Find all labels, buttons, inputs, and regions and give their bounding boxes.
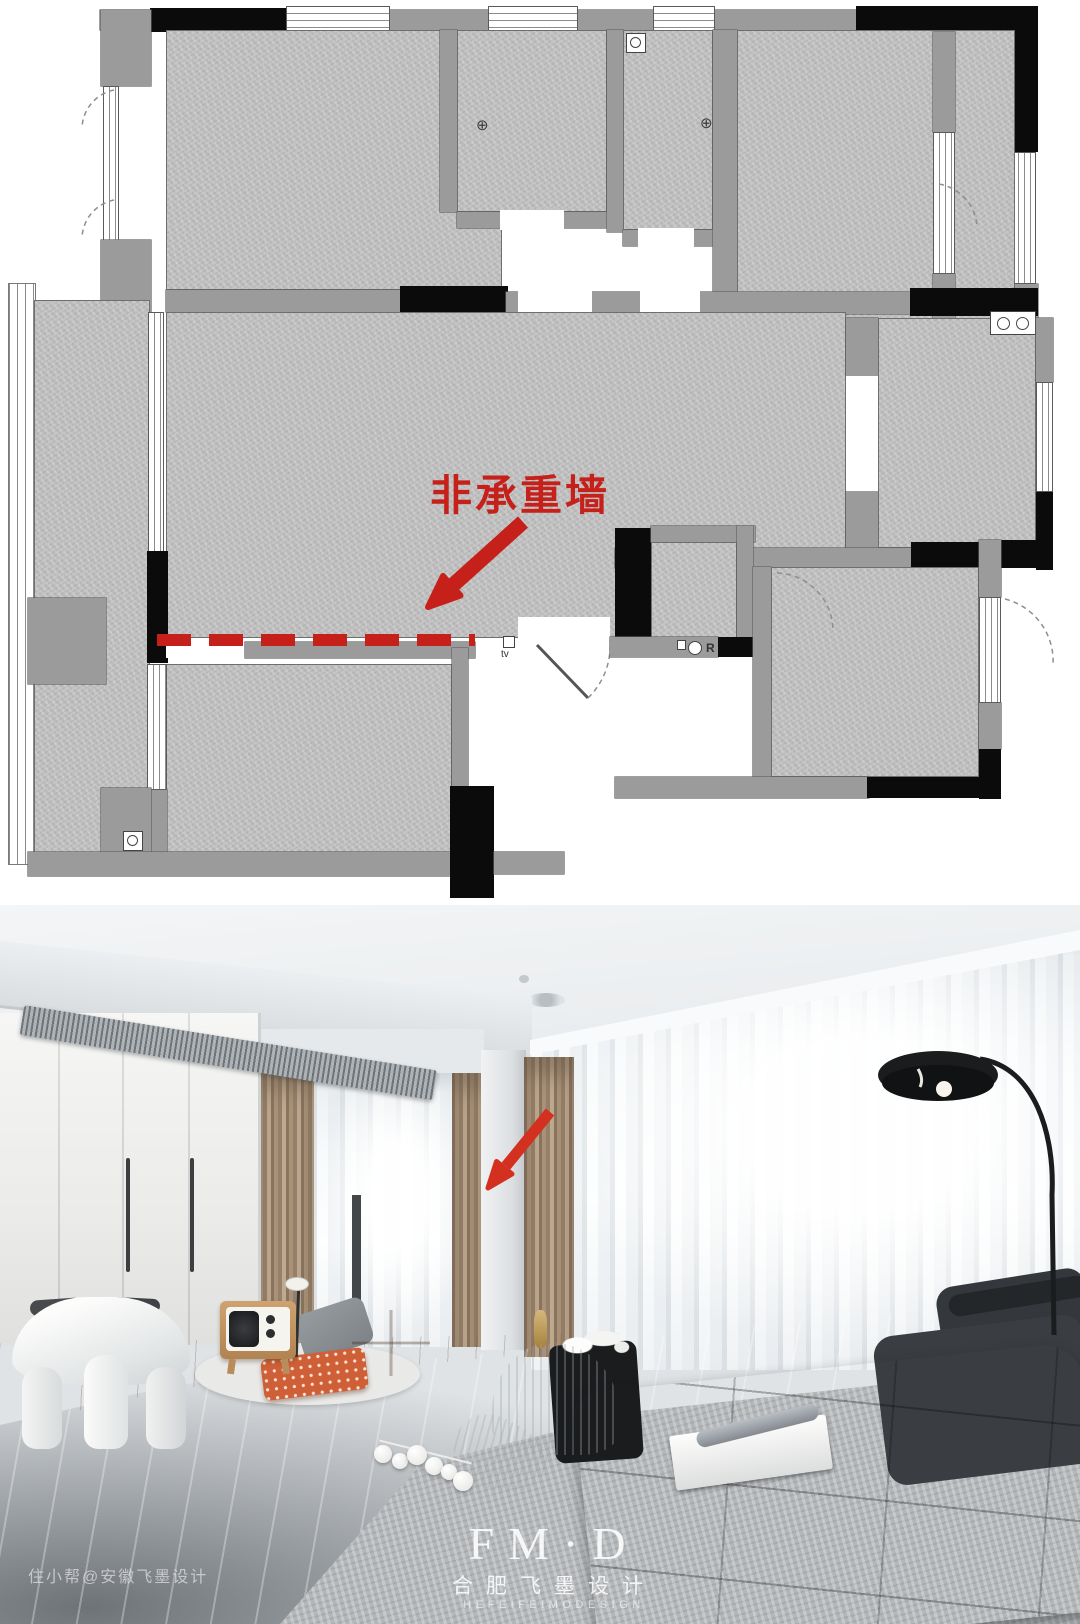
wall-inner-right bbox=[933, 32, 955, 132]
wall-bedroom-bl-right bbox=[452, 648, 468, 788]
watermark-logo: FM·D bbox=[404, 1517, 704, 1570]
window-top-1 bbox=[286, 6, 390, 32]
wall-bedroom-br-right-b bbox=[979, 703, 1001, 749]
pompom bbox=[392, 1453, 408, 1469]
window-swing-icon bbox=[78, 196, 118, 242]
fixture-circle-icon bbox=[127, 835, 138, 846]
room-bedroom-bl bbox=[166, 664, 452, 854]
wall-entry-black bbox=[718, 637, 755, 657]
wall-bath3-right bbox=[737, 526, 753, 638]
arc-floor-lamp bbox=[830, 1025, 1080, 1355]
floor-symbol bbox=[123, 831, 143, 851]
ceiling-spotlight bbox=[519, 975, 529, 983]
wardrobe-seam bbox=[122, 1013, 124, 1345]
window-bedroom-br bbox=[979, 597, 1001, 703]
floorplan-section: ⊕ ⊕ tv bbox=[0, 0, 1080, 905]
fixture-box-symbol bbox=[677, 640, 686, 650]
window-right-top bbox=[1012, 152, 1036, 284]
wall-divider-1 bbox=[440, 30, 457, 212]
wall-divider-2 bbox=[607, 30, 623, 232]
room-balcony-left bbox=[34, 300, 150, 854]
wall-bedroom-br-bottom bbox=[615, 777, 869, 798]
door-swing-icon bbox=[935, 180, 981, 230]
wall-kitchen-right-a bbox=[1036, 318, 1053, 382]
wall-black-endpost bbox=[147, 551, 168, 663]
fixture-circle-icon bbox=[630, 37, 641, 48]
pompom bbox=[374, 1445, 392, 1463]
post-image: { "floorplan": { "annotation_label": "非承… bbox=[0, 0, 1080, 1624]
wall-bottom bbox=[28, 852, 464, 876]
wall-bottom-right bbox=[494, 852, 564, 874]
ceiling-speaker bbox=[527, 993, 565, 1007]
roly-chair-leg bbox=[146, 1367, 186, 1449]
entry-door-icon bbox=[525, 612, 625, 712]
interior-photo-section: FM·D 合肥飞墨设计 HEFEIFEIMODESIGN 住小帮@安徽飞墨设计 bbox=[0, 905, 1080, 1624]
wardrobe-handle bbox=[190, 1158, 194, 1272]
wall-bedroom-br-left bbox=[753, 567, 771, 779]
tv-knob-icon bbox=[266, 1315, 275, 1324]
wall-band-black bbox=[400, 286, 508, 314]
window-swing-icon bbox=[78, 86, 118, 132]
stove-symbol bbox=[990, 311, 1036, 335]
room-kitchen bbox=[878, 318, 1036, 548]
tv-point-symbol bbox=[503, 636, 515, 648]
retro-tv-screen bbox=[229, 1311, 259, 1347]
wall-divider-3 bbox=[713, 30, 737, 292]
wall-bottom-black bbox=[450, 786, 494, 898]
room-bath-3 bbox=[651, 542, 737, 638]
watermark-subtitle: HEFEIFEIMODESIGN bbox=[374, 1599, 734, 1611]
non-bearing-wall-dashed-line bbox=[157, 634, 475, 646]
washer-symbol bbox=[688, 641, 702, 655]
wall-top-black bbox=[150, 8, 288, 32]
floor-drain-icon: ⊕ bbox=[476, 118, 489, 134]
wardrobe-handle bbox=[126, 1158, 130, 1272]
tv-knob-icon bbox=[266, 1329, 275, 1338]
roly-chair-leg bbox=[22, 1367, 62, 1449]
red-arrow-icon bbox=[408, 512, 543, 612]
tv-label: tv bbox=[501, 649, 509, 660]
wall-balcony-pier bbox=[28, 598, 106, 684]
wall-kitchen-left-a bbox=[846, 318, 878, 376]
wall-topleft-pier bbox=[101, 10, 151, 86]
wall-bedroom-br-right-black bbox=[979, 749, 1001, 799]
door-opening-bath2 bbox=[638, 228, 694, 248]
window-top-3 bbox=[653, 6, 715, 32]
wall-bedroom-br-bottom-black bbox=[867, 777, 979, 798]
ceiling-fixture-symbol bbox=[626, 33, 646, 53]
watermark-credit: 住小帮@安徽飞墨设计 bbox=[28, 1563, 288, 1587]
watermark-brand: 合肥飞墨设计 bbox=[374, 1570, 734, 1600]
roly-chair-leg bbox=[84, 1355, 128, 1449]
door-opening-kitchen bbox=[846, 376, 878, 492]
balcony-railing bbox=[8, 283, 36, 865]
burner-icon bbox=[997, 317, 1010, 330]
floor-drain-icon: ⊕ bbox=[700, 116, 713, 132]
retro-tv bbox=[220, 1301, 296, 1359]
window-swing-icon bbox=[1001, 595, 1059, 670]
pompom bbox=[407, 1445, 427, 1465]
window-bedroom-bl bbox=[147, 664, 167, 790]
door-swing-icon bbox=[775, 569, 837, 631]
window-balcony-living bbox=[148, 312, 164, 552]
red-arrow-icon bbox=[470, 1100, 560, 1210]
reading-lamp-shade bbox=[285, 1277, 309, 1291]
pompom bbox=[453, 1471, 473, 1491]
wardrobe-seam bbox=[58, 1013, 60, 1345]
gold-vase bbox=[534, 1310, 547, 1348]
window-kitchen bbox=[1036, 382, 1053, 492]
wall-band-left bbox=[166, 290, 402, 312]
wall-bedroom-br-right-a bbox=[979, 540, 1001, 597]
door-opening-bath1 bbox=[500, 210, 564, 230]
window-top-2 bbox=[488, 6, 578, 32]
burner-icon bbox=[1016, 317, 1029, 330]
fixture-r-label: R bbox=[706, 641, 715, 655]
